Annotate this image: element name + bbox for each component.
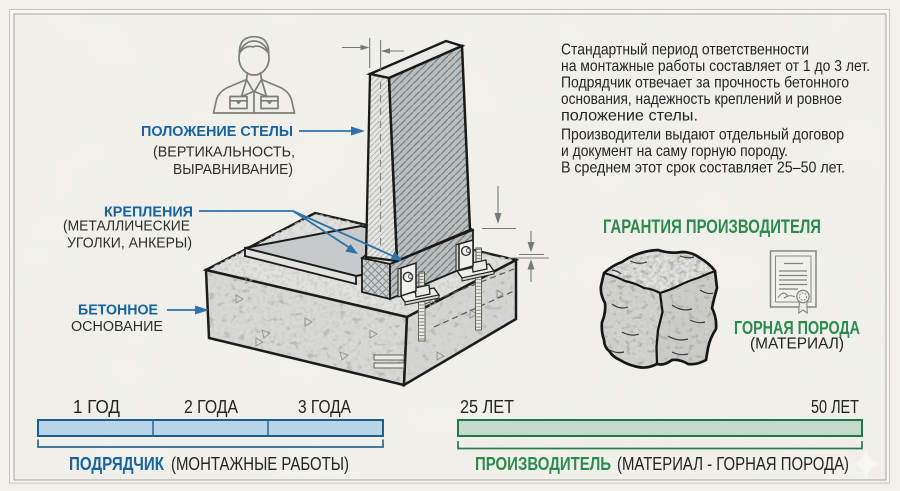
svg-text:ПОДРЯДЧИК: ПОДРЯДЧИК: [69, 453, 165, 474]
svg-text:на монтажные работы составляет: на монтажные работы составляет от 1 до 3…: [561, 58, 870, 75]
svg-text:(МЕТАЛЛИЧЕСКИЕ: (МЕТАЛЛИЧЕСКИЕ: [63, 219, 190, 235]
svg-text:25 ЛЕТ: 25 ЛЕТ: [460, 396, 514, 417]
svg-text:2 ГОДА: 2 ГОДА: [184, 396, 239, 417]
svg-text:основания, надежность креплени: основания, надежность креплений и ровное: [561, 91, 842, 108]
svg-text:(МОНТАЖНЫЕ РАБОТЫ): (МОНТАЖНЫЕ РАБОТЫ): [171, 453, 349, 474]
svg-text:1 ГОД: 1 ГОД: [73, 396, 120, 417]
svg-text:(МАТЕРИАЛ): (МАТЕРИАЛ): [750, 336, 844, 353]
svg-text:Стандартный период ответственн: Стандартный период ответственности: [561, 42, 809, 59]
svg-text:3 ГОДА: 3 ГОДА: [298, 396, 352, 417]
svg-text:положение стелы.: положение стелы.: [561, 108, 698, 125]
svg-text:(ВЕРТИКАЛЬНОСТЬ,: (ВЕРТИКАЛЬНОСТЬ,: [153, 144, 295, 160]
svg-text:ОСНОВАНИЕ: ОСНОВАНИЕ: [71, 319, 163, 335]
svg-text:Производители выдают отдельный: Производители выдают отдельный договор: [561, 127, 844, 144]
svg-text:Подрядчик отвечает за прочност: Подрядчик отвечает за прочность бетонног…: [561, 75, 849, 92]
svg-text:(МАТЕРИАЛ - ГОРНАЯ ПОРОДА): (МАТЕРИАЛ - ГОРНАЯ ПОРОДА): [617, 453, 849, 474]
svg-text:ПОЛОЖЕНИЕ СТЕЛЫ: ПОЛОЖЕНИЕ СТЕЛЫ: [141, 124, 293, 140]
svg-text:УГОЛКИ, АНКЕРЫ): УГОЛКИ, АНКЕРЫ): [67, 236, 192, 252]
svg-text:50 ЛЕТ: 50 ЛЕТ: [811, 396, 859, 417]
svg-text:В среднем этот срок составляе: В среднем этот срок составляет 25–50 лет…: [561, 160, 845, 177]
svg-text:ГАРАНТИЯ ПРОИЗВОДИТЕЛЯ: ГАРАНТИЯ ПРОИЗВОДИТЕЛЯ: [603, 217, 821, 238]
svg-text:БЕТОННОЕ: БЕТОННОЕ: [78, 303, 158, 319]
svg-text:ВЫРАВНИВАНИЕ): ВЫРАВНИВАНИЕ): [173, 162, 293, 178]
svg-text:ПРОИЗВОДИТЕЛЬ: ПРОИЗВОДИТЕЛЬ: [475, 453, 611, 474]
svg-text:и документ на саму горную поро: и документ на саму горную породу.: [561, 143, 788, 160]
